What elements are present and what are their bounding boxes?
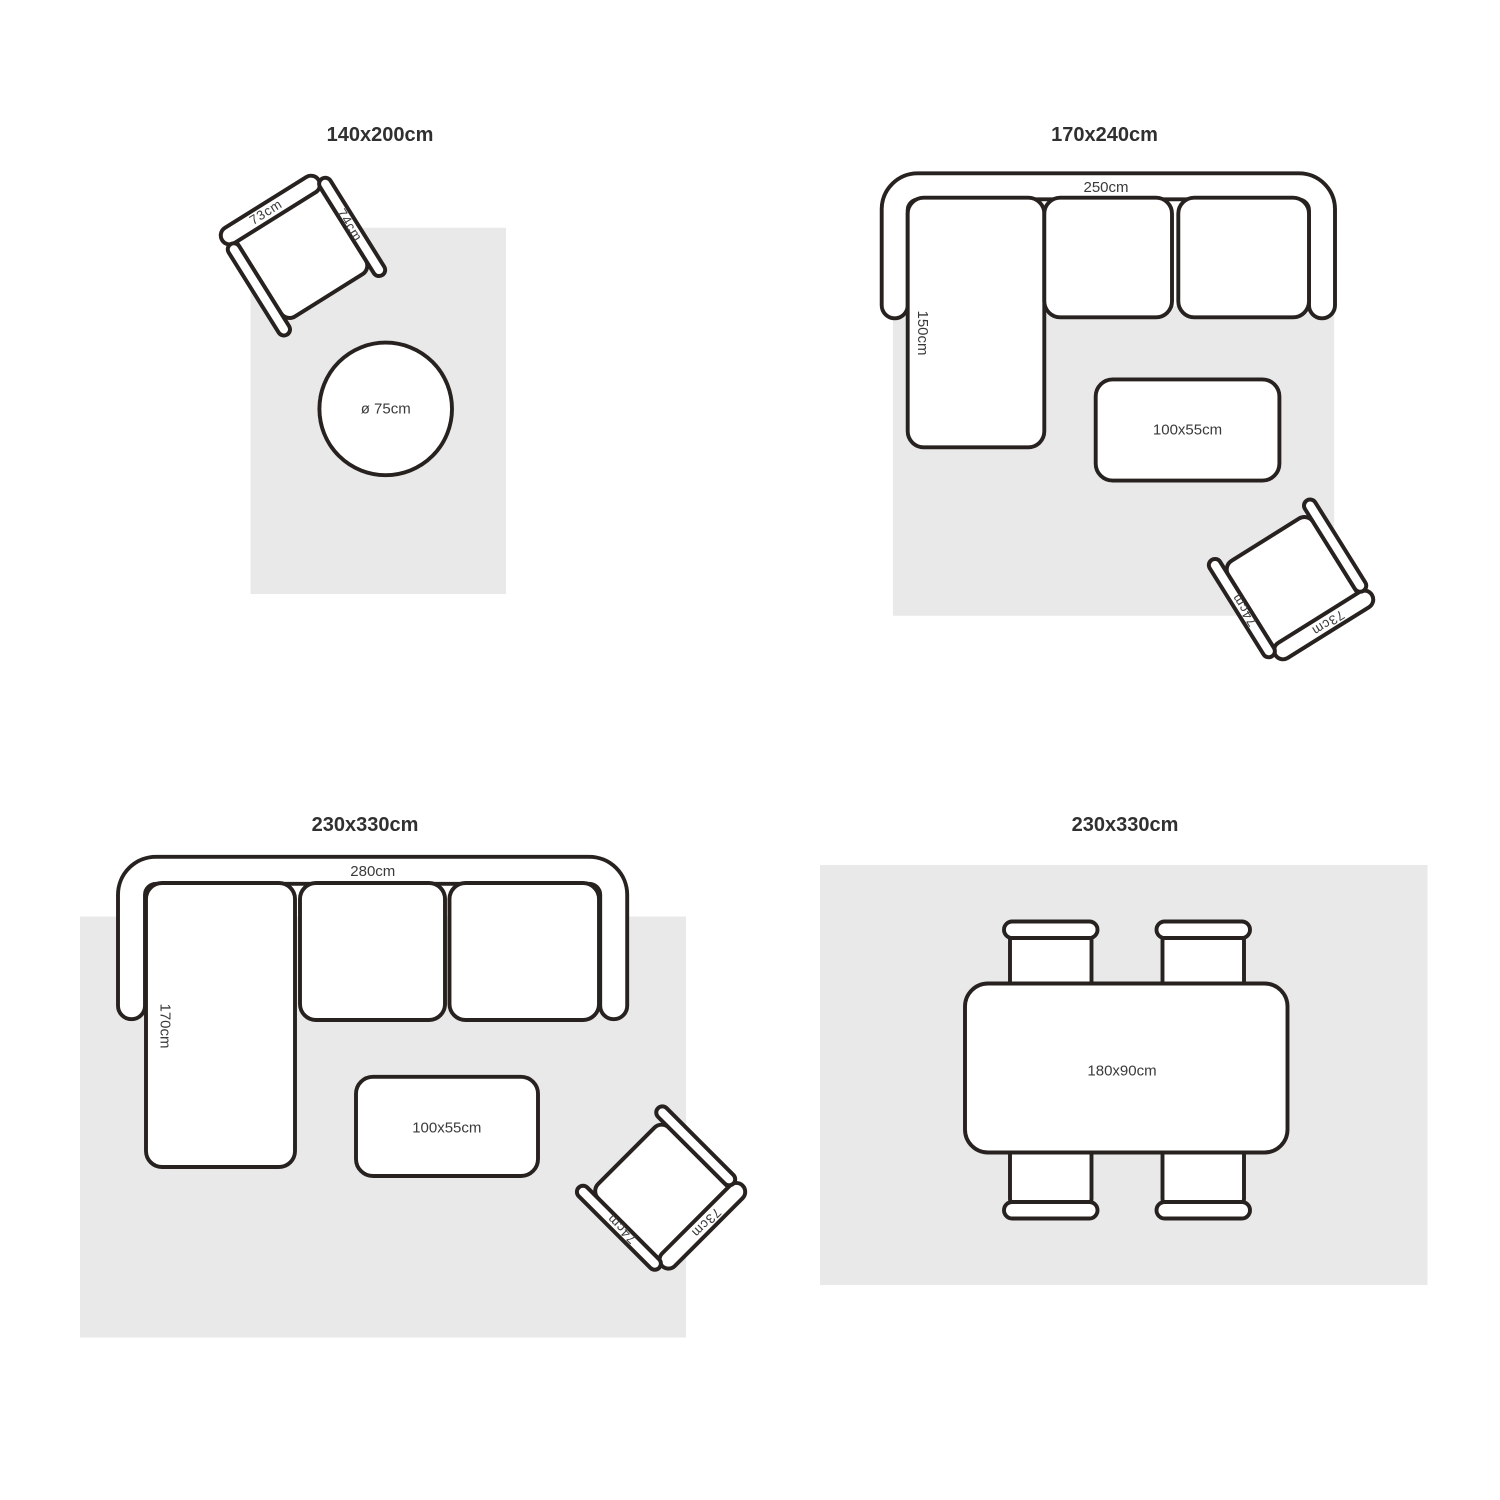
svg-text:230x330cm: 230x330cm [1072, 814, 1179, 836]
svg-text:170x240cm: 170x240cm [1051, 124, 1158, 146]
svg-text:280cm: 280cm [350, 863, 395, 880]
svg-text:250cm: 250cm [1083, 179, 1128, 196]
svg-text:140x200cm: 140x200cm [327, 124, 434, 146]
svg-text:ø 75cm: ø 75cm [361, 400, 411, 417]
svg-text:230x330cm: 230x330cm [312, 814, 419, 836]
svg-text:100x55cm: 100x55cm [412, 1120, 481, 1137]
svg-text:180x90cm: 180x90cm [1087, 1063, 1156, 1080]
svg-text:100x55cm: 100x55cm [1153, 422, 1222, 439]
svg-text:170cm: 170cm [157, 1003, 174, 1048]
svg-text:150cm: 150cm [914, 310, 931, 355]
